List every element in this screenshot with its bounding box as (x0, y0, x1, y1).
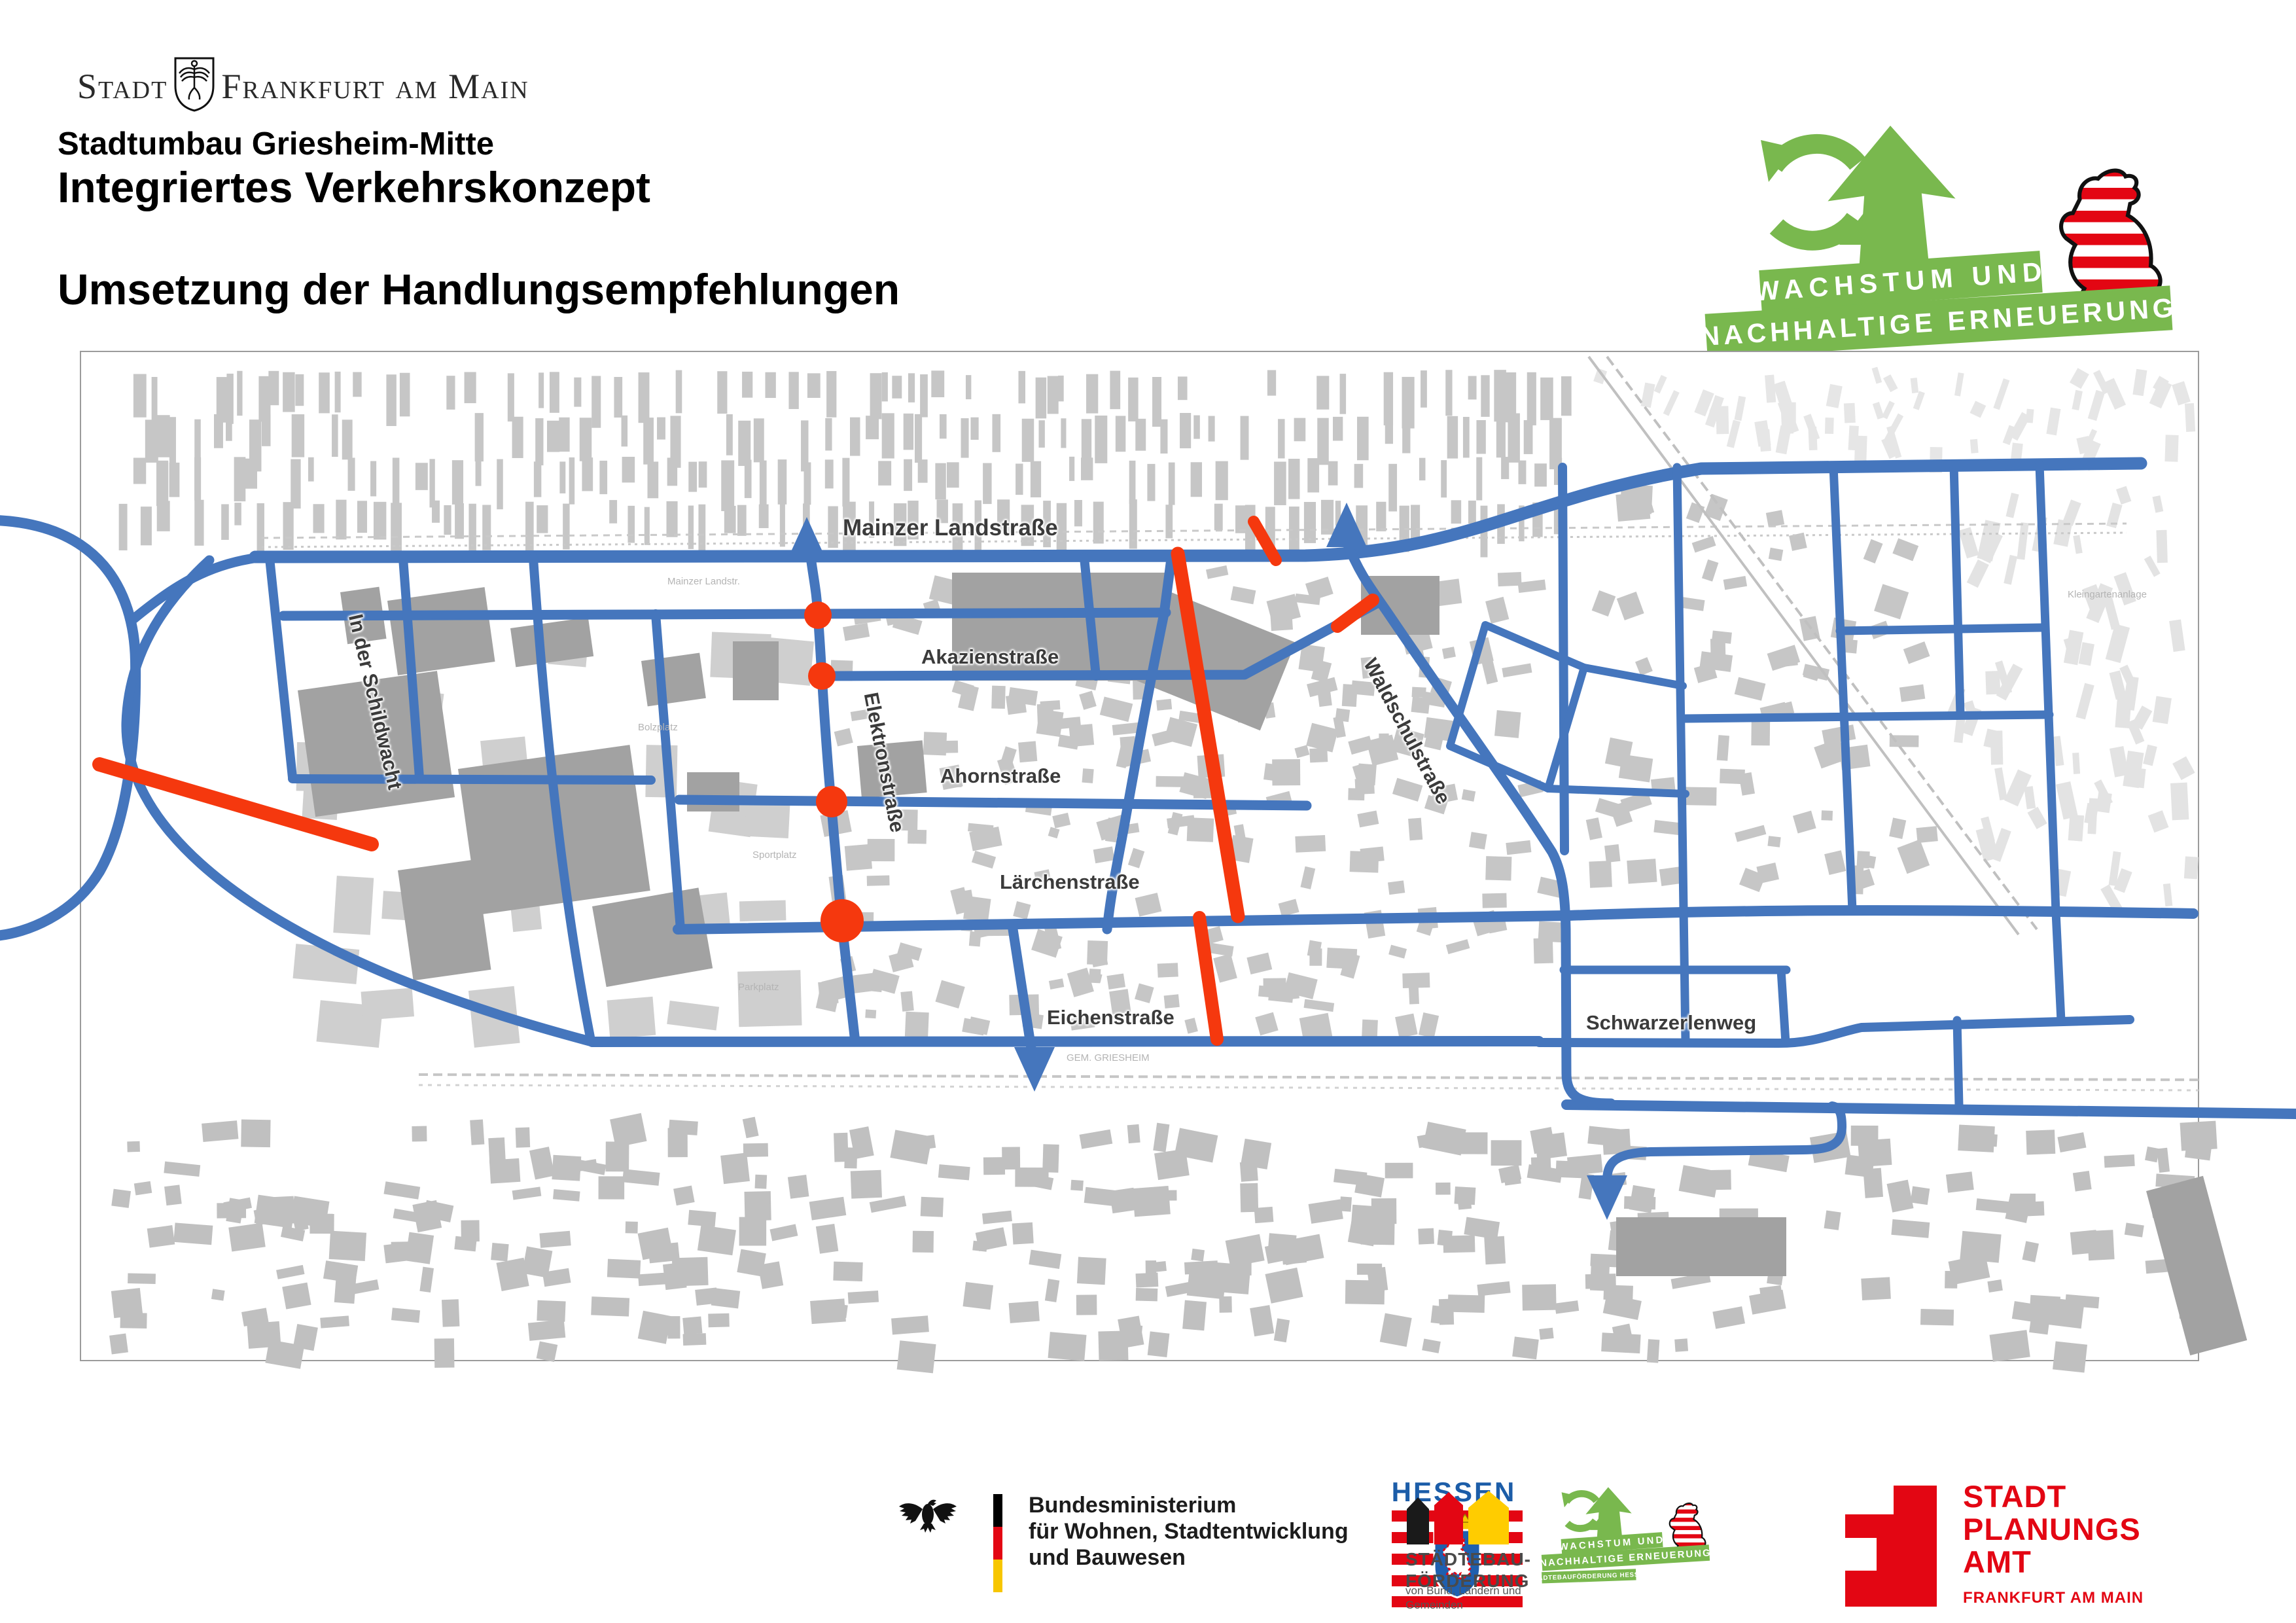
map-micro-label: GEM. GRIESHEIM (1067, 1052, 1150, 1063)
staedtebaufoerderung-subtext: von Bund, Ländern und Gemeinden (1405, 1584, 1521, 1613)
map-label-layer: Mainzer LandstraßeAkazienstraßeAhornstra… (0, 0, 2296, 1623)
growth-banner-3: STÄDTEBAUFÖRDERUNG HESSEN (1542, 1569, 1636, 1583)
stadtplanungsamt-subtext: FRANKFURT AM MAIN (1963, 1589, 2144, 1607)
street-label: Ahornstraße (940, 764, 1061, 788)
stadtplanungsamt-text: STADT PLANUNGS AMT (1963, 1480, 2141, 1578)
street-label: Akazienstraße (921, 645, 1059, 669)
street-label: Eichenstraße (1047, 1006, 1174, 1029)
federal-eagle-icon (895, 1489, 961, 1535)
stb-line: STÄDTEBAU- (1405, 1548, 1531, 1570)
map-micro-label: Kleingartenanlage (2068, 589, 2147, 600)
map-micro-label: Sportplatz (752, 849, 797, 861)
growth-renewal-logo: WACHSTUM UND NACHHALTIGE ERNEUERUNG STÄD… (1539, 1484, 1713, 1588)
growth-arrow-icon (1579, 1486, 1638, 1542)
street-label: Lärchenstraße (1000, 870, 1140, 894)
stadtplanungsamt-glyph (1845, 1486, 1937, 1610)
stb-subline: Gemeinden (1405, 1598, 1521, 1613)
map-micro-label: Parkplatz (738, 982, 779, 993)
street-label: Mainzer Landstraße (843, 515, 1058, 541)
bmwsb-text: Bundesministerium für Wohnen, Stadtentwi… (1029, 1492, 1349, 1571)
street-label: Waldschulstraße (1358, 654, 1455, 808)
spa-line: STADT (1963, 1480, 2141, 1513)
staedtebaufoerderung-houses-icon (1405, 1491, 1517, 1549)
stb-subline: von Bund, Ländern und (1405, 1584, 1521, 1598)
bmwsb-line: und Bauwesen (1029, 1544, 1349, 1571)
bmwsb-line: für Wohnen, Stadtentwicklung (1029, 1518, 1349, 1544)
bmwsb-line: Bundesministerium (1029, 1492, 1349, 1518)
spa-line: AMT (1963, 1546, 2141, 1578)
growth-logo-footer: WACHSTUM UND NACHHALTIGE ERNEUERUNG STÄD… (1539, 1484, 1713, 1588)
street-label: Elektronstraße (859, 690, 910, 834)
map-micro-label: Mainzer Landstr. (667, 576, 740, 587)
street-label: In der Schildwacht (344, 612, 407, 792)
bmwsb-logo (895, 1489, 961, 1539)
spa-line: PLANUNGS (1963, 1513, 2141, 1546)
map-micro-label: Bolzplatz (638, 722, 678, 733)
bmwsb-flag-bar (993, 1494, 1002, 1592)
street-label: Schwarzerlenweg (1586, 1011, 1756, 1035)
